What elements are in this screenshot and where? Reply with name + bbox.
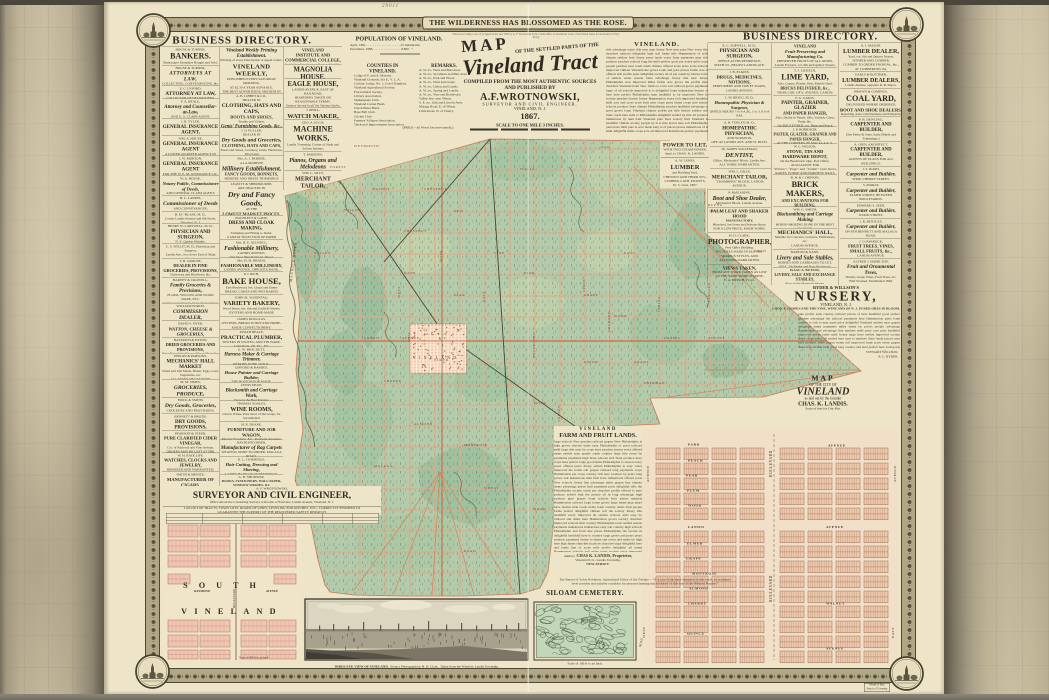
svg-text:AVENUE: AVENUE [893, 465, 897, 482]
svg-text:CHESTNUT: CHESTNUT [424, 187, 447, 191]
svg-text:MONTROSE: MONTROSE [464, 443, 488, 447]
svg-text:WHEAT: WHEAT [484, 486, 499, 490]
svg-text:NEW: NEW [454, 209, 464, 213]
svg-text:LANDIS: LANDIS [688, 525, 705, 529]
svg-text:RAYMOND: RAYMOND [194, 589, 211, 593]
svg-text:WALNUT: WALNUT [826, 602, 845, 606]
svg-text:WOOD: WOOD [688, 504, 702, 508]
svg-text:MALAGA: MALAGA [374, 464, 393, 468]
svg-text:MAIN: MAIN [439, 250, 443, 262]
svg-text:ORCHARD: ORCHARD [607, 311, 611, 332]
svg-text:PEAR: PEAR [686, 474, 698, 478]
svg-text:LINCOLN: LINCOLN [707, 283, 711, 302]
svg-text:CHERRY: CHERRY [384, 379, 401, 383]
svg-text:EAST: EAST [624, 251, 635, 255]
svg-text:WOOD: WOOD [614, 314, 627, 318]
svg-text:ELMER: ELMER [434, 358, 449, 362]
svg-text:LANDIS: LANDIS [364, 336, 380, 340]
svg-text:ROAD: ROAD [464, 549, 476, 553]
svg-text:PEACH: PEACH [688, 459, 703, 463]
svg-text:AVENUE: AVENUE [266, 589, 278, 593]
svg-text:VALLEY: VALLEY [314, 251, 331, 255]
svg-text:C I T Y: C I T Y [424, 332, 449, 336]
svg-text:AVENUE: AVENUE [646, 465, 650, 482]
svg-text:BOULEVARD: BOULEVARD [532, 332, 536, 358]
svg-text:WEST: WEST [397, 286, 401, 298]
svg-text:SHERMAN: SHERMAN [644, 381, 665, 385]
svg-text:BOULEVARD: BOULEVARD [769, 450, 773, 477]
svg-text:GRAPE: GRAPE [686, 557, 701, 561]
svg-text:AVENUE: AVENUE [828, 444, 846, 448]
svg-text:Scale of 400 ft to an Inch.: Scale of 400 ft to an Inch. [239, 656, 269, 660]
svg-text:AVENUE: AVENUE [826, 525, 844, 529]
svg-text:DANE: DANE [404, 271, 416, 275]
svg-text:UNION: UNION [584, 360, 598, 364]
svg-text:OAK: OAK [601, 145, 610, 149]
svg-text:VALLEY: VALLEY [557, 405, 561, 422]
svg-text:EAST: EAST [891, 627, 895, 638]
svg-text:BOULEVARD: BOULEVARD [769, 575, 773, 602]
svg-text:BOULEVARD: BOULEVARD [232, 588, 236, 608]
svg-text:PARK: PARK [524, 271, 535, 275]
svg-text:MONTROSE: MONTROSE [692, 572, 717, 576]
svg-text:GRAPE: GRAPE [584, 293, 598, 297]
svg-text:CHERRY: CHERRY [688, 602, 707, 606]
svg-text:EAST: EAST [482, 291, 486, 302]
svg-text:WALNUT: WALNUT [372, 187, 390, 191]
svg-text:GRANT: GRANT [634, 360, 649, 364]
svg-text:SPRING: SPRING [657, 296, 661, 312]
svg-text:VINE: VINE [494, 251, 505, 255]
svg-text:AVENUE: AVENUE [826, 647, 844, 651]
svg-text:LANDIS: LANDIS [664, 336, 680, 340]
svg-text:AVENUE: AVENUE [708, 336, 725, 340]
svg-text:PLUM: PLUM [687, 489, 700, 493]
svg-text:WEST: WEST [642, 626, 646, 638]
svg-text:ALMOND: ALMOND [689, 587, 709, 591]
svg-text:PLUM: PLUM [534, 401, 546, 405]
svg-text:STATE: STATE [582, 279, 586, 292]
svg-text:ROAD: ROAD [534, 507, 546, 511]
svg-text:ALMOND: ALMOND [414, 422, 433, 426]
svg-text:ELMER: ELMER [687, 542, 703, 546]
svg-text:QUINCE: QUINCE [687, 632, 705, 636]
svg-text:CHESTNUT: CHESTNUT [404, 229, 427, 233]
svg-text:WEYMOUTH: WEYMOUTH [354, 144, 379, 148]
svg-text:MILL: MILL [407, 331, 411, 342]
svg-text:VINELAND: VINELAND [181, 607, 283, 616]
svg-text:PARK: PARK [688, 443, 700, 447]
svg-text:PEAR: PEAR [454, 293, 465, 297]
svg-text:WILLOW: WILLOW [344, 208, 362, 212]
